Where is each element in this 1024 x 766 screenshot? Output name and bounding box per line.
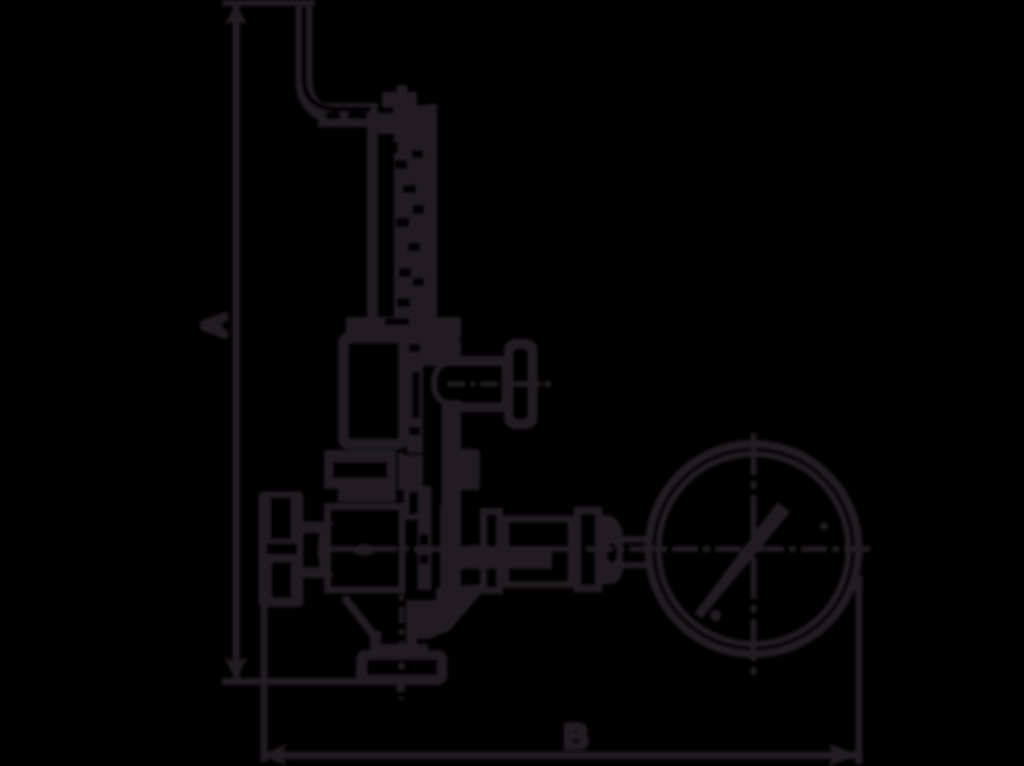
svg-text:A: A: [196, 313, 234, 338]
svg-text:B: B: [564, 718, 589, 756]
